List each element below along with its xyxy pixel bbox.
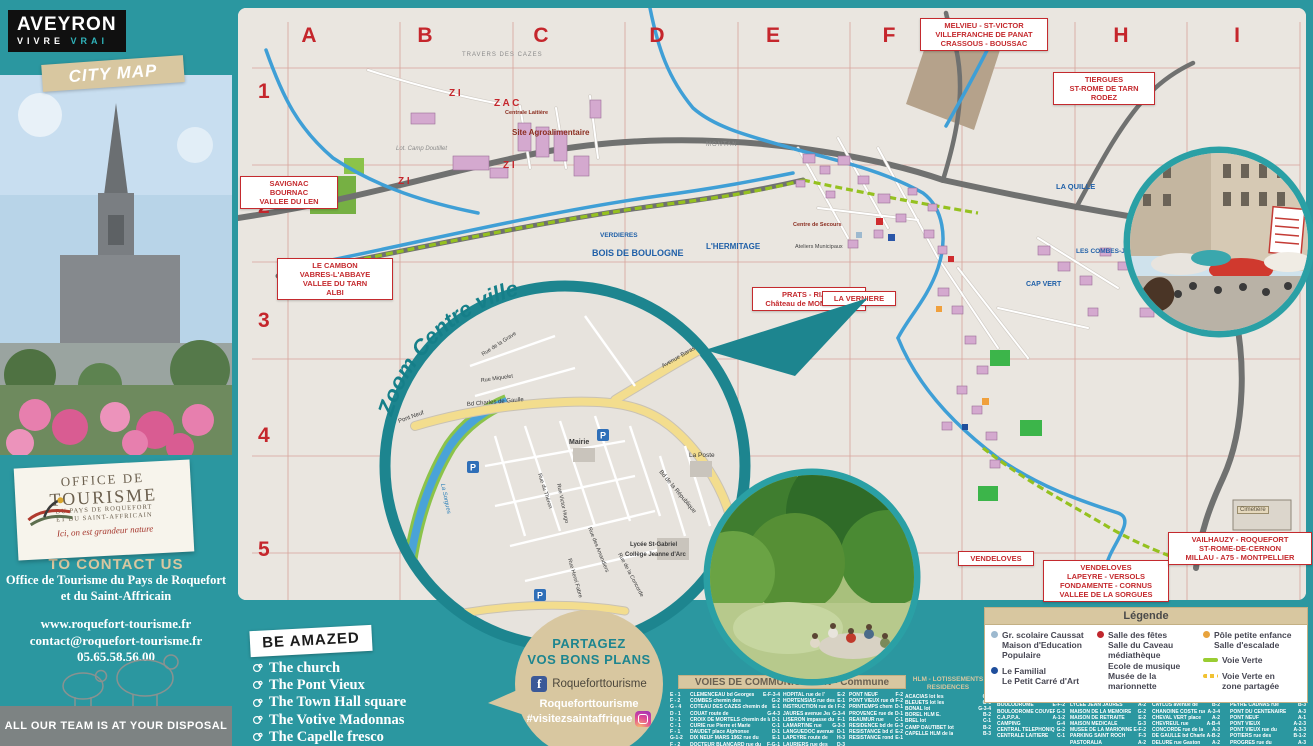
grid-column-label: D [646,24,668,48]
map-label-zi-3: Z I [398,176,410,187]
map-label-centrale-laitiere: Centrale Laitière [505,110,548,116]
center-zoom-inset: P P P Pont Neuf Bd Charles de Gaulle Mai… [375,276,755,656]
aveyron-logo-line1: AVEYRON [17,15,117,34]
place-row: PASTORALIAA-2 [1070,740,1146,746]
sheep-icon [252,732,263,743]
inset-label-lycee: Lycée St-Gabriel [630,542,677,548]
picnic-photo [703,468,921,691]
sheep-icon [252,680,263,691]
map-label-verdieres: VERDIERES [600,232,638,239]
share-bubble: PARTAGEZ VOS BONS PLANS f Roqueforttouri… [515,610,663,746]
team-footer-note: ALL OUR TEAM IS AT YOUR DISPOSAL [0,706,232,746]
sheep-icon [252,698,263,709]
place-row: CENTRALE LAITIEREC-1 [997,733,1065,739]
market-photo [1123,146,1313,343]
share-title-line1: PARTAGEZ [515,636,663,652]
map-label-centre-de-secours: Centre de Secours [793,222,842,228]
sidebar: AVEYRON VIVRE VRAI CITY MAP OFFICE DE TO… [0,0,232,746]
map-label-la-quille: LA QUILLE [1056,182,1095,191]
grid-row-label: 3 [258,309,270,333]
grid-column-label: B [414,24,436,48]
street-row: PROGRES rue duA-3 [1230,740,1306,746]
tourism-office-sticker: OFFICE DE TOURISME DU PAYS DE ROQUEFORT … [14,459,195,560]
legend-item: Pôle petite enfance Salle d'escalade [1203,630,1301,650]
svg-text:P: P [470,463,476,473]
legend-column: Gr. scolaire Caussat Maison d'Education … [991,630,1089,696]
be-amazed-item: The Town Hall square [252,694,406,711]
market-sign-shape [1269,207,1305,256]
map-legend: Légende Gr. scolaire Caussat Maison d'Ed… [984,607,1308,703]
map-label-bois-de-boulogne: BOIS DE BOULOGNE [592,248,684,258]
svg-text:P: P [537,591,543,601]
be-amazed-item: The Pont Vieux [252,677,406,694]
sign-savignac: SAVIGNAC BOURNAC VALLEE DU LEN [240,176,338,209]
legend-item: Gr. scolaire Caussat Maison d'Education … [991,630,1089,661]
grid-column-label: A [298,24,320,48]
street-index-column-1: CLEMENCEAU bd GeorgesE-F-3-4COMBES chemi… [690,692,780,746]
street-index-row: DOCTEUR BLANCARD rue duF-G-1 [690,742,780,746]
street-index-refs-column: E - 1F - 2G - 4D - 1D - 1C - 1F - 1G-1-2… [670,692,687,746]
legend-dot-icon [991,631,998,638]
contact-org-line2: et du Saint-Affricain [0,589,232,605]
grid-column-label: I [1226,24,1248,48]
street-index-row: LAURIERS rue desD-3 [783,742,845,746]
be-amazed-banner: BE AMAZED [249,625,372,657]
church-photo [0,75,232,455]
inset-label-college: Collège Jeanne d'Arc [625,552,686,558]
map-label-zi-2: Z I [503,160,515,171]
be-amazed-list: The church The Pont Vieux The Town Hall … [252,660,406,746]
legend-item: Voie Verte [1203,655,1301,665]
aveyron-logo-line2: VIVRE VRAI [17,37,117,46]
grid-column-label: E [762,24,784,48]
street-ref: F - 2 [670,742,687,746]
map-label-camp-doutillet: Lot. Camp Doutillet [396,146,447,152]
facebook-icon[interactable]: f [531,676,547,692]
sign-vendeloves: VENDELOVES LAPEYRE - VERSOLS FONDAMENTE … [1043,560,1169,602]
sheep-icon [252,663,263,674]
grid-column-label: F [878,24,900,48]
grid-row-label: 1 [258,80,270,104]
map-label-zac: Z A C [494,98,519,109]
svg-text:P: P [600,431,606,441]
street-index-row: RESISTANCE rond point de laE-1 [849,735,903,741]
inset-label-mairie: Mairie [569,439,589,446]
social-hashtag[interactable]: #visitezsaintaffrique [527,713,633,725]
city-map-page: ABCDEFGHI 12345 SAVIGNAC BOURNAC VALLEE … [0,0,1313,746]
social-handle[interactable]: Roqueforttourisme [515,697,663,711]
be-amazed-item: The church [252,660,406,677]
legend-dot-icon [991,667,998,674]
street-row: DELURE rue GastonA-2 [1152,740,1220,746]
map-grid-letters: ABCDEFGHI [298,24,1248,48]
aveyron-logo: AVEYRON VIVRE VRAI [8,10,126,52]
legend-item: Voie Verte en zone partagée [1203,671,1301,691]
grid-row-label: 5 [258,538,270,562]
map-label-zi-1: Z I [449,88,461,99]
inset-label-la-poste: La Poste [689,452,715,459]
instagram-icon[interactable] [635,711,651,727]
map-label-cimetiere: Cimetière [1237,506,1269,514]
contact-website-link[interactable]: www.roquefort-tourisme.fr [0,616,232,632]
tourism-office-logo-icon [23,491,77,534]
sign-vailhauzy: VAILHAUZY - ROQUEFORT ST-ROME-DE-CERNON … [1168,532,1312,565]
legend-item: Le Familial Le Petit Carré d'Art [991,666,1089,686]
map-label-ateliers-municipaux: Ateliers Municipaux [795,244,843,250]
hlm-row: CAPELLE HLM de laB-3 [905,731,991,737]
sheep-illustration [45,648,195,710]
map-label-montan: MONTAN [706,142,738,148]
be-amazed-item: The Capelle fresco [252,729,406,746]
legend-column: Salle des fêtes Salle du Caveau médiathè… [1097,630,1195,696]
grid-column-label: C [530,24,552,48]
legend-voie-verte-icon [1203,658,1218,662]
map-label-site-agroalimentaire: Site Agroalimentaire [512,128,590,137]
grid-column-label: H [1110,24,1132,48]
map-label-travers-des-cazes: TRAVERS DES CAZES [462,52,543,58]
legend-item: Salle des fêtes Salle du Caveau médiathè… [1097,630,1195,691]
be-amazed-item: The Votive Madonnas [252,712,406,729]
legend-dot-icon [1203,631,1210,638]
sheep-icon [252,715,263,726]
grid-row-label: 4 [258,424,270,448]
sign-melvieu: MELVIEU - ST-VICTOR VILLEFRANCHE DE PANA… [920,18,1048,51]
street-index-column-2: HOPITAL rue de l'E-2HORTENSIAS rue desE-… [783,692,845,746]
map-label-cap-vert: CAP VERT [1026,281,1061,288]
legend-column: Pôle petite enfance Salle d'escalade Voi… [1203,630,1301,696]
contact-org-line1: Office de Tourisme du Pays de Roquefort [0,573,232,589]
inset-map-artwork: P P P Pont Neuf Bd Charles de Gaulle Mai… [375,276,755,656]
map-label-hermitage: L'HERMITAGE [706,242,760,251]
street-index-column-3: PONT NEUFF-2PONT VIEUX rue duF-2PRINTEMP… [849,692,903,742]
sign-tiergues: TIERGUES ST-ROME DE TARN RODEZ [1053,72,1155,105]
contact-email-link[interactable]: contact@roquefort-tourisme.fr [0,633,232,649]
legend-dot-icon [1097,631,1104,638]
map-grid-rows: 12345 [258,80,270,562]
facebook-account-link[interactable]: Roqueforttourisme [552,678,647,690]
legend-title: Légende [984,607,1308,625]
share-title-line2: VOS BONS PLANS [515,652,663,668]
legend-voie-verte-partagee-icon [1203,674,1218,678]
sign-vendeloves-small: VENDELOVES [958,551,1034,566]
